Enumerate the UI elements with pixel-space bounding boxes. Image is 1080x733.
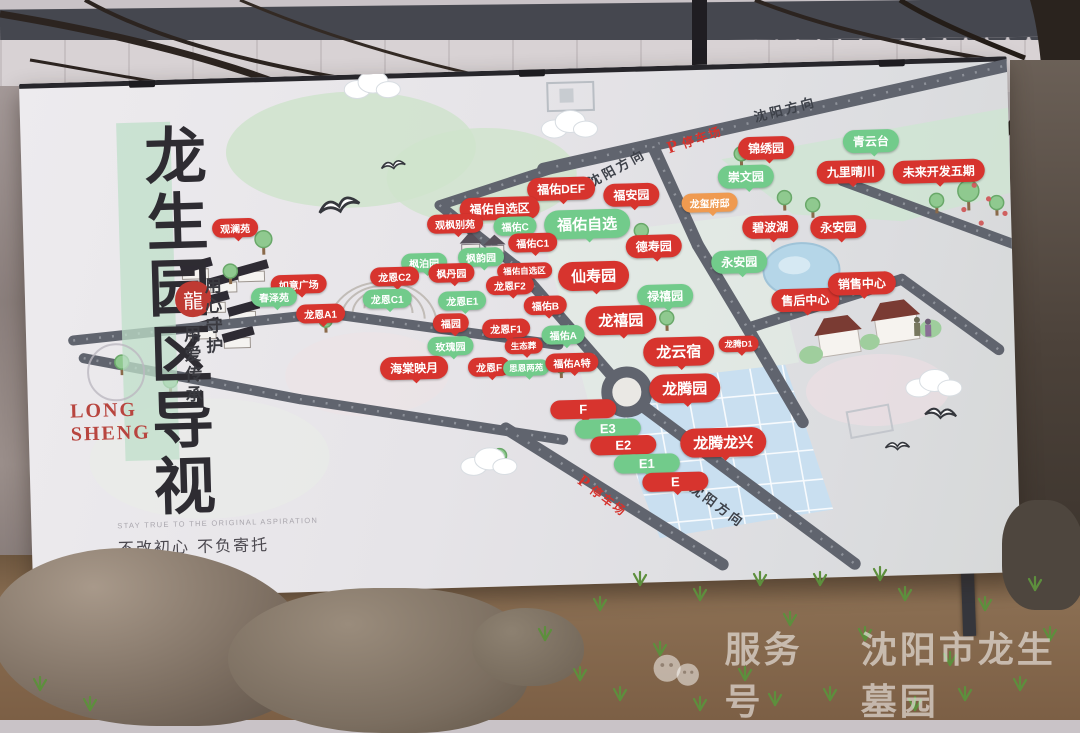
map-label-pill: 锦绣园 (738, 136, 795, 161)
map-label-pill: 青云台 (843, 129, 900, 154)
watermark: 服务号 沈阳市龙生墓园 (648, 638, 1078, 708)
map-label-pill: 龙恩A1 (296, 303, 345, 323)
watermark-account-name: 沈阳市龙生墓园 (861, 621, 1078, 725)
map-label-pill: 九里晴川 (816, 159, 885, 184)
map-label-pill: 福安园 (603, 183, 660, 208)
map-label-pill: 永安园 (810, 215, 867, 240)
map-label-pill: 龙恩F2 (486, 275, 534, 295)
map-label-pill: 观澜苑 (212, 218, 259, 238)
map-label-pill: 福佑A (541, 325, 585, 345)
map-label-pill: 生态葬 (505, 337, 543, 354)
map-label-pill: 福佑A特 (545, 352, 599, 372)
map-label-pill: 福园 (433, 313, 470, 333)
map-label-pill: 龙腾龙兴 (680, 427, 767, 458)
map-label-pill: 玫瑰园 (427, 336, 474, 356)
map-label-pill: 福佑自选 (544, 208, 631, 239)
map-label-pill: E (642, 471, 709, 492)
map-label-pill: 碧波湖 (742, 215, 799, 240)
map-label-pill: 龙恩C2 (370, 266, 419, 286)
boulder (472, 608, 584, 686)
wechat-icon (648, 649, 708, 697)
map-label-pill: 福佑C1 (508, 232, 557, 252)
park-map-board: 龙生园区导视 LONG SHENG 龍 用心守护 用爱传承 STAY TRUE … (19, 56, 1021, 599)
map-label-pill: F (550, 399, 617, 420)
map-labels-layer: 锦绣园青云台崇文园九里晴川未来开发五期龙玺府邸福佑DEF福安园碧波湖永安园福佑自… (19, 56, 1021, 599)
map-label-pill: 龙腾园 (649, 373, 721, 404)
map-label-pill: 德寿园 (625, 234, 682, 259)
map-label-pill: 龙玺府邸 (681, 192, 738, 213)
map-label-pill: 龙云宿 (643, 336, 715, 367)
map-label-pill: 福佑B (524, 295, 568, 315)
map-label-pill: E1 (614, 453, 681, 474)
map-label-pill: 福佑DEF (527, 176, 596, 201)
boulder (1002, 500, 1080, 610)
map-label-pill: 永安园 (711, 250, 768, 275)
map-label-pill: 龙恩E1 (438, 290, 487, 310)
map-label-pill: 海棠映月 (380, 356, 449, 381)
map-label-pill: 龙禧园 (585, 305, 657, 336)
map-label-pill: 销售中心 (828, 271, 897, 296)
map-label-pill: 思恩两苑 (503, 359, 549, 376)
map-label-pill: 观枫别苑 (427, 213, 484, 234)
map-label-pill: 龙恩F1 (482, 318, 530, 338)
map-label-pill: 崇文园 (718, 164, 775, 189)
watermark-account-label: 服务号 (724, 621, 817, 725)
map-label-pill: 未来开发五期 (892, 158, 985, 184)
map-label-pill: 龙恩C1 (362, 289, 411, 309)
map-label-pill: 枫丹园 (428, 263, 475, 283)
map-label-pill: 龙腾D1 (718, 335, 758, 352)
map-label-pill: 仙寿园 (558, 260, 630, 291)
map-label-pill: 售后中心 (771, 288, 840, 313)
map-label-pill: E2 (590, 435, 657, 456)
map-label-pill: 春泽苑 (251, 287, 298, 307)
